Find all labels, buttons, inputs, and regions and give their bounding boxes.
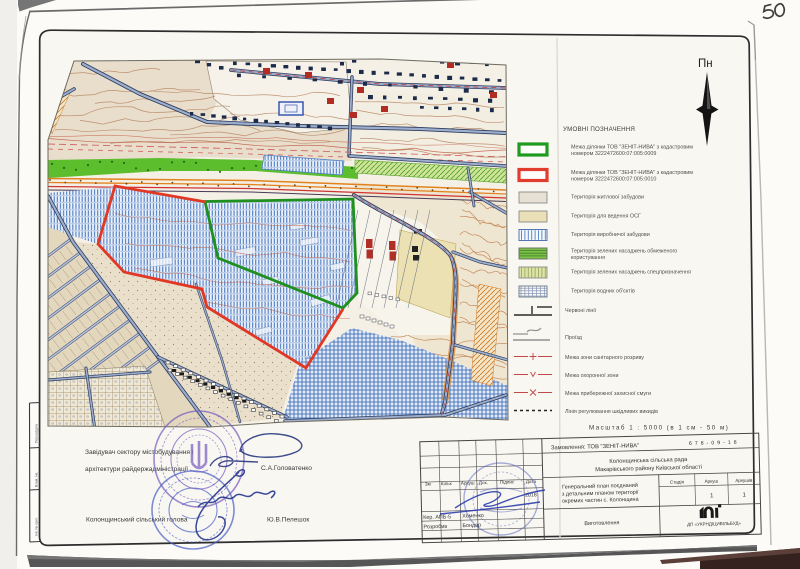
svg-text:номером 3222472600:07:005:0009: номером 3222472600:07:005:0009 (571, 151, 656, 157)
svg-text:Ю.В.Пелешок: Ю.В.Пелешок (267, 517, 309, 524)
svg-text:Інв. № ориг.: Інв. № ориг. (34, 517, 38, 536)
svg-text:Аркушів: Аркушів (735, 478, 753, 483)
svg-text:Територія житлової забудови: Територія житлової забудови (571, 195, 644, 201)
svg-text:Межа ділянки ТОВ "ЗЕНІТ-НИВА": Межа ділянки ТОВ "ЗЕНІТ-НИВА" з кадастро… (571, 170, 693, 176)
svg-text:С.А.Головатенко: С.А.Головатенко (261, 465, 312, 472)
svg-text:Межа охоронної зони: Межа охоронної зони (565, 373, 619, 379)
svg-text:Територія зелених насаджень сп: Територія зелених насаджень спецпризначе… (571, 270, 691, 276)
svg-text:Взам. інв.: Взам. інв. (34, 472, 38, 487)
svg-text:Стадія: Стадія (670, 479, 685, 484)
svg-text:Кільк: Кільк (441, 481, 453, 486)
svg-text:Червоні лінії: Червоні лінії (565, 308, 597, 314)
svg-text:Розробив: Розробив (423, 524, 447, 531)
svg-text:Межа прибережної захисної смуг: Межа прибережної захисної смуги (565, 391, 651, 397)
svg-text:Територія для ведення ОСГ: Територія для ведення ОСГ (571, 214, 641, 220)
svg-text:Проїзд: Проїзд (565, 335, 583, 341)
svg-text:Територія водних об'єктів: Територія водних об'єктів (571, 289, 635, 295)
svg-text:користування: користування (571, 255, 605, 261)
svg-text:Перша/дата: Перша/дата (34, 424, 38, 443)
svg-text:номером 3222472600:07:005:0010: номером 3222472600:07:005:0010 (571, 177, 656, 183)
svg-text:Пн: Пн (698, 58, 713, 70)
svg-text:УМОВНІ ПОЗНАЧЕННЯ: УМОВНІ ПОЗНАЧЕННЯ (563, 126, 635, 133)
svg-text:Територія виробничої забудови: Територія виробничої забудови (571, 232, 650, 238)
svg-text:678-09-18: 678-09-18 (689, 440, 740, 447)
svg-text:Виготовлення: Виготовлення (584, 520, 619, 527)
svg-text:Межа зони санітарного розриву: Межа зони санітарного розриву (565, 355, 644, 361)
svg-text:Кер. АПБ-5: Кер. АПБ-5 (423, 514, 451, 521)
svg-text:Хоменко: Хоменко (462, 513, 484, 520)
svg-text:Підпис: Підпис (500, 479, 515, 484)
svg-text:Лінія регулювання шкідливих ви: Лінія регулювання шкідливих викидів (565, 409, 658, 415)
svg-text:Зм: Зм (425, 481, 431, 486)
svg-text:Межа ділянки ТОВ "ЗЕНІТ-НИВА": Межа ділянки ТОВ "ЗЕНІТ-НИВА" з кадастро… (571, 145, 693, 151)
svg-text:Аркуш: Аркуш (704, 478, 718, 483)
svg-text:Масштаб 1 : 5000 (в 1 см - 50: Масштаб 1 : 5000 (в 1 см - 50 м) (589, 425, 729, 432)
svg-text:Територія зелених насаджень об: Територія зелених насаджень обмеженого (571, 249, 677, 255)
